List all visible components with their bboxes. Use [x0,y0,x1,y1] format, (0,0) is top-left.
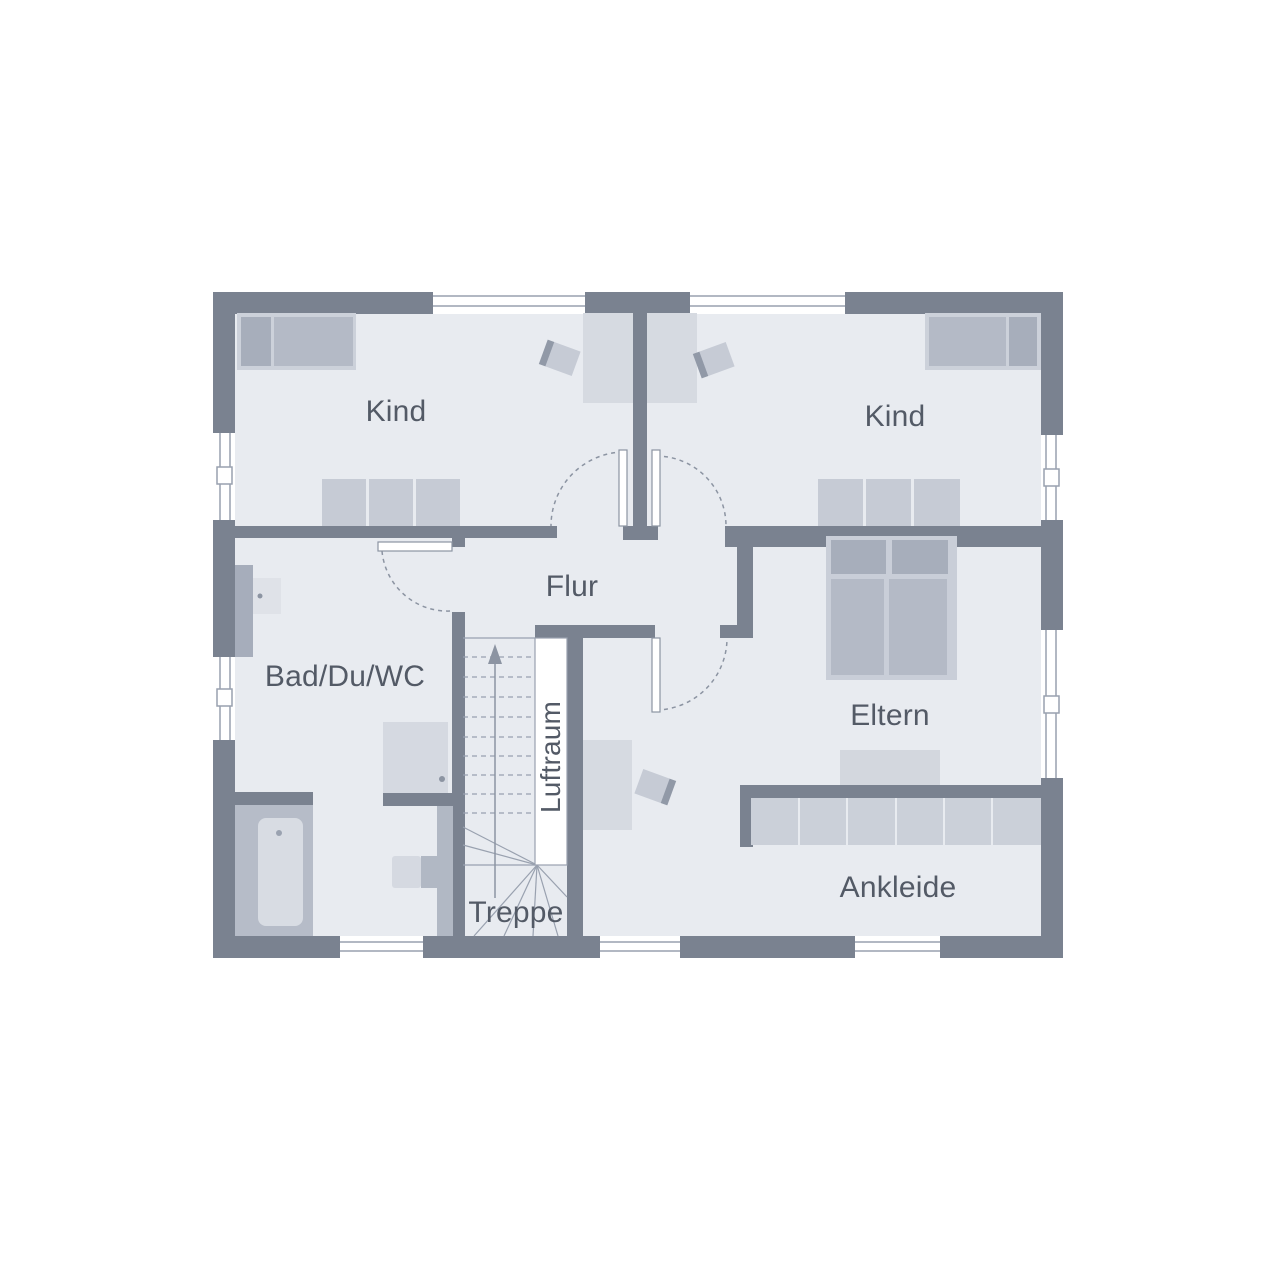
bed-kind-right [925,313,1041,370]
wall-bathtub-stub [235,792,313,805]
sink [253,578,281,614]
wall-luftraum-right [567,625,583,936]
wall-shower-stub [383,793,465,806]
bed-eltern [826,536,957,680]
wall-bad-door-stub [452,526,465,547]
wall-kindleft-bottom [235,526,557,538]
desk-kind-right [647,313,697,403]
room-label-eltern: Eltern [850,699,930,733]
floor-plan-page: Kind Kind Flur Bad/Du/WC Eltern Ankleide… [0,0,1280,1280]
wall-ankleide-top [740,785,1041,798]
wardrobe-ankleide [751,798,1041,845]
wall-kind-divider [633,314,647,526]
room-label-kind-right: Kind [865,400,926,434]
dresser-eltern [840,750,940,785]
window-bottom-eltern [600,936,680,958]
wall-stair-left [452,612,465,936]
wardrobe-kind-left [322,479,460,526]
window-left-kind [213,433,235,520]
wall-between-kind-doors [623,526,658,540]
wall-flur-south [535,625,655,638]
room-label-ankleide: Ankleide [840,871,957,905]
prewall-sink [235,565,253,657]
window-top-left [433,292,585,314]
room-label-bad: Bad/Du/WC [265,660,425,694]
outer-wall-right [1041,292,1063,958]
window-bottom-ankleide [855,936,940,958]
bathtub [235,805,313,936]
window-top-right [690,292,845,314]
floor-plan-drawing [0,0,1280,1280]
desk-kind-left [583,313,633,403]
desk-eltern [583,740,632,830]
outer-wall-top [213,292,1063,314]
window-left-bad [213,657,235,740]
room-label-kind-left: Kind [366,395,427,429]
bed-kind-left [237,313,356,370]
outer-wall-left [213,292,235,958]
window-bottom-bad [340,936,423,958]
window-right-kind [1041,435,1063,520]
window-right-eltern [1041,630,1063,778]
shower [383,722,448,793]
wall-eltern-left [737,540,753,638]
wall-eltern-door-stub [720,625,753,638]
wardrobe-kind-right [818,479,960,526]
room-label-treppe: Treppe [468,896,563,930]
room-label-flur: Flur [546,570,598,604]
room-label-luftraum: Luftraum [535,701,567,813]
